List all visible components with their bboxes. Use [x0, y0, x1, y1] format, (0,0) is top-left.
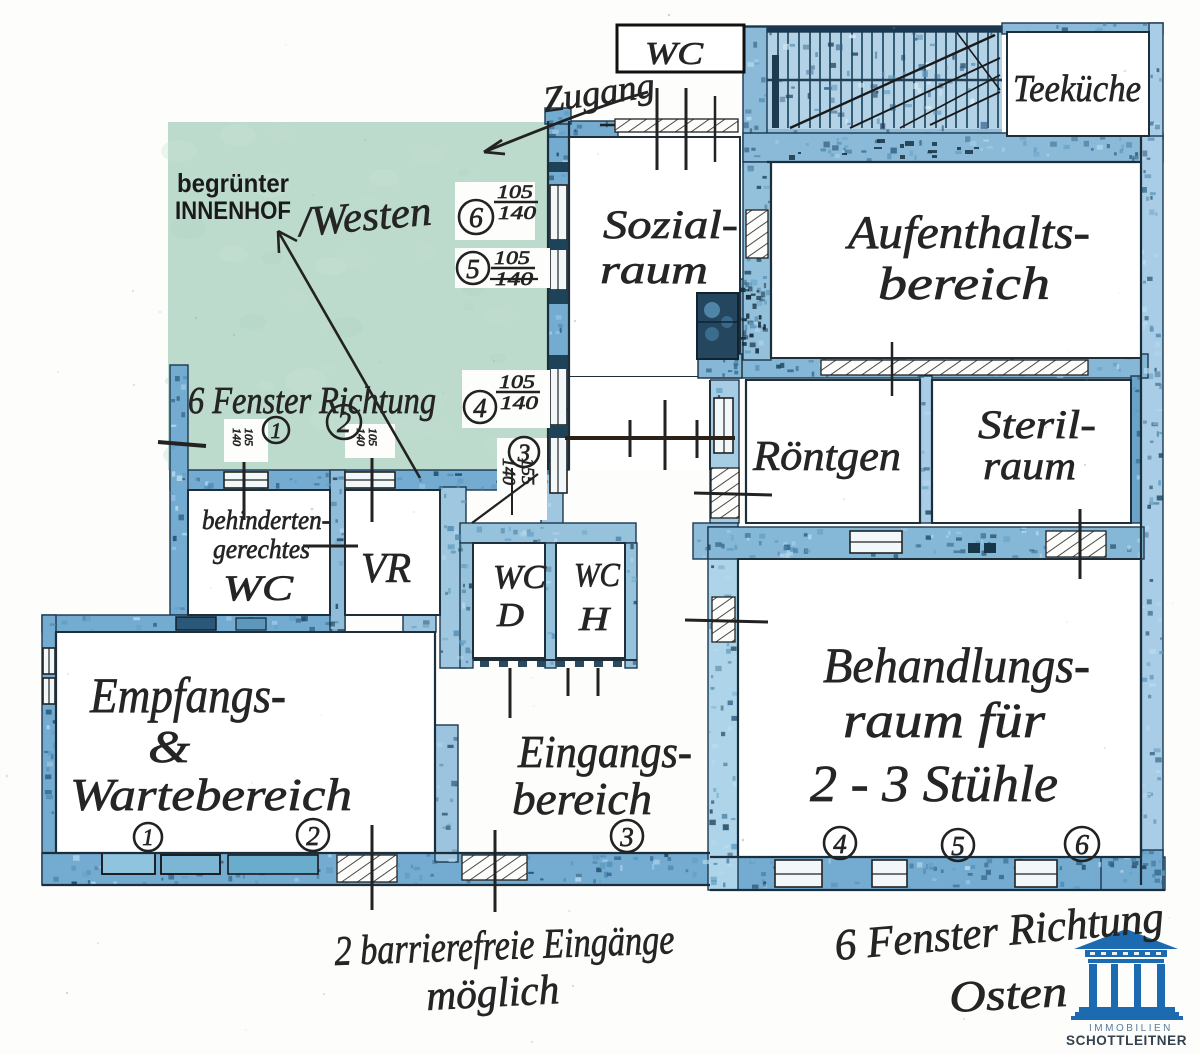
svg-text:H: H: [578, 601, 612, 638]
svg-text:2 - 3 Stühle: 2 - 3 Stühle: [810, 756, 1058, 813]
svg-text:140: 140: [354, 428, 368, 446]
svg-text:105: 105: [494, 248, 530, 269]
svg-text:Behandlungs-: Behandlungs-: [823, 637, 1090, 693]
svg-text:D: D: [496, 597, 525, 634]
svg-text:WC: WC: [645, 35, 704, 71]
svg-text:140: 140: [230, 428, 244, 446]
svg-text:Teeküche: Teeküche: [1013, 68, 1141, 110]
svg-text:Eingangs-: Eingangs-: [517, 726, 692, 777]
svg-text:3: 3: [619, 822, 634, 852]
svg-text:6: 6: [469, 203, 483, 234]
svg-text:140: 140: [500, 393, 539, 414]
svg-text:6 Fenster Richtung: 6 Fenster Richtung: [188, 380, 436, 422]
svg-text:5: 5: [951, 831, 965, 861]
svg-text:140: 140: [498, 203, 537, 224]
svg-text:bereich: bereich: [878, 258, 1050, 310]
svg-text:105: 105: [499, 372, 535, 393]
svg-text:Steril-: Steril-: [978, 402, 1096, 447]
svg-text:Wartebereich: Wartebereich: [70, 769, 352, 820]
svg-text:raum: raum: [600, 247, 708, 292]
svg-text:Empfangs-: Empfangs-: [89, 667, 286, 723]
svg-text:WC: WC: [493, 559, 546, 596]
svg-text:WC: WC: [574, 557, 620, 594]
svg-text:&: &: [148, 721, 190, 772]
svg-text:140: 140: [499, 458, 519, 485]
svg-text:möglich: möglich: [425, 967, 560, 1020]
svg-text:INNENHOF: INNENHOF: [175, 197, 291, 225]
svg-text:1: 1: [142, 825, 154, 850]
svg-text:raum für: raum für: [843, 692, 1046, 748]
svg-text:begrünter: begrünter: [177, 168, 289, 198]
svg-text:3: 3: [517, 440, 531, 467]
svg-text:Aufenthalts-: Aufenthalts-: [845, 207, 1090, 259]
svg-text:Sozial-: Sozial-: [603, 202, 738, 247]
svg-text:behinderten-: behinderten-: [202, 505, 330, 535]
svg-text:105: 105: [497, 182, 533, 203]
svg-text:2: 2: [306, 821, 320, 851]
svg-text:SCHOTTLEITNER: SCHOTTLEITNER: [1066, 1033, 1187, 1048]
svg-text:bereich: bereich: [512, 773, 652, 824]
svg-text:WC: WC: [223, 568, 294, 608]
svg-text:VR: VR: [361, 546, 411, 592]
svg-text:4: 4: [833, 829, 847, 859]
svg-text:Röntgen: Röntgen: [752, 434, 901, 480]
svg-text:5: 5: [466, 254, 480, 284]
svg-text:6: 6: [1075, 830, 1089, 861]
svg-text:4: 4: [473, 393, 487, 423]
svg-text:Osten: Osten: [948, 967, 1068, 1022]
svg-text:gerechtes: gerechtes: [213, 534, 310, 564]
svg-text:raum: raum: [983, 443, 1076, 488]
